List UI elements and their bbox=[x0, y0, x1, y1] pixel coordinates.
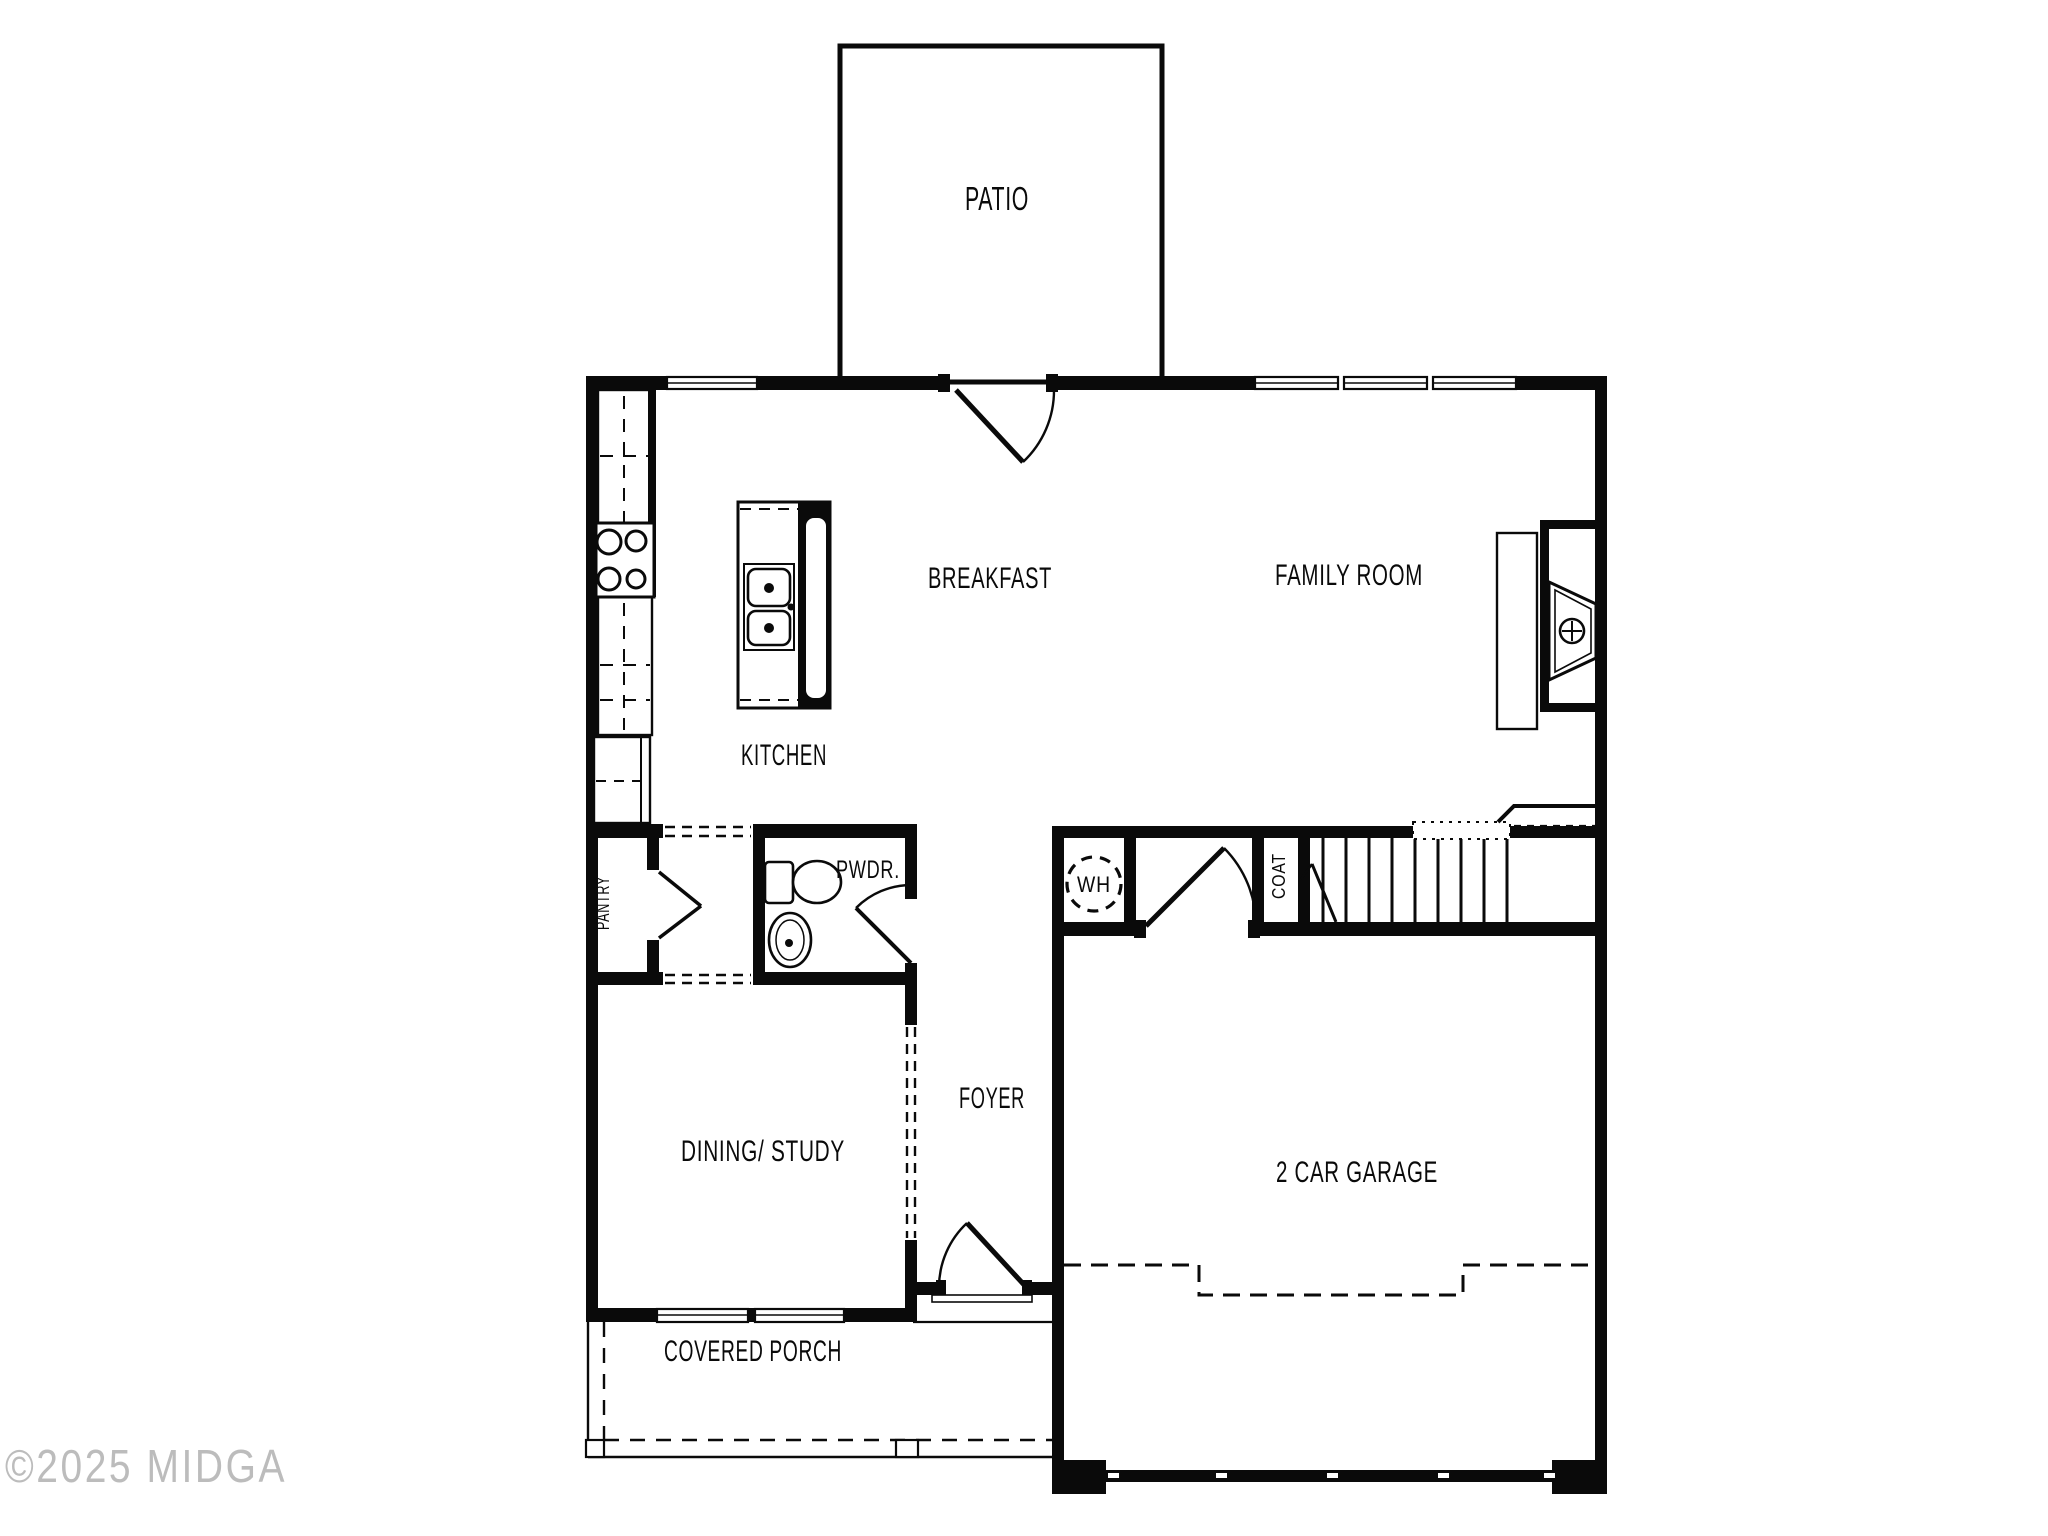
floor-plan-drawing: PATIO BREAKFAST FAMILY ROOM KITCHEN PANT… bbox=[0, 0, 2048, 1536]
family-room-window-icon bbox=[1255, 377, 1516, 389]
porch-column bbox=[896, 1440, 918, 1457]
front-door bbox=[936, 1223, 1032, 1297]
powder-door bbox=[856, 885, 911, 963]
garage-step-line bbox=[1064, 1265, 1595, 1295]
floor-plan-page: PATIO BREAKFAST FAMILY ROOM KITCHEN PANT… bbox=[0, 0, 2048, 1536]
label-garage: 2 CAR GARAGE bbox=[1276, 1156, 1438, 1189]
cooktop-icon bbox=[596, 523, 654, 597]
patio-door bbox=[938, 374, 1058, 462]
front-stoop bbox=[913, 1295, 1052, 1322]
label-patio: PATIO bbox=[965, 180, 1029, 217]
cased-openings bbox=[665, 827, 1230, 1238]
label-kitchen: KITCHEN bbox=[741, 739, 827, 772]
kitchen-sink-icon bbox=[744, 564, 795, 650]
label-coat: COAT bbox=[1269, 853, 1289, 899]
label-family-room: FAMILY ROOM bbox=[1275, 559, 1423, 592]
porch-corner bbox=[586, 1440, 604, 1457]
fireplace-icon bbox=[1497, 520, 1607, 729]
label-covered-porch: COVERED PORCH bbox=[664, 1335, 842, 1368]
label-dining-study: DINING/ STUDY bbox=[681, 1135, 845, 1168]
powder-room-fixtures bbox=[765, 861, 841, 967]
pantry-double-door bbox=[659, 872, 701, 938]
kitchen-window-icon bbox=[667, 377, 757, 389]
room-labels: PATIO BREAKFAST FAMILY ROOM KITCHEN PANT… bbox=[593, 180, 1438, 1368]
label-powder: PWDR. bbox=[836, 856, 900, 884]
label-pantry: PANTRY bbox=[593, 876, 613, 930]
garage-door-icon bbox=[1106, 1470, 1556, 1482]
powder-sink-icon bbox=[769, 913, 811, 967]
label-foyer: FOYER bbox=[959, 1082, 1025, 1115]
kitchen-island bbox=[738, 502, 830, 708]
garage-entry-door bbox=[1134, 848, 1260, 938]
label-water-heater: WH bbox=[1077, 872, 1111, 897]
copyright-watermark: ©2025 MIDGA bbox=[5, 1440, 287, 1492]
refrigerator-icon bbox=[594, 737, 650, 823]
garage-details bbox=[1064, 1265, 1595, 1482]
stairs bbox=[1323, 806, 1600, 922]
label-breakfast: BREAKFAST bbox=[928, 562, 1052, 595]
toilet-icon bbox=[765, 861, 841, 903]
